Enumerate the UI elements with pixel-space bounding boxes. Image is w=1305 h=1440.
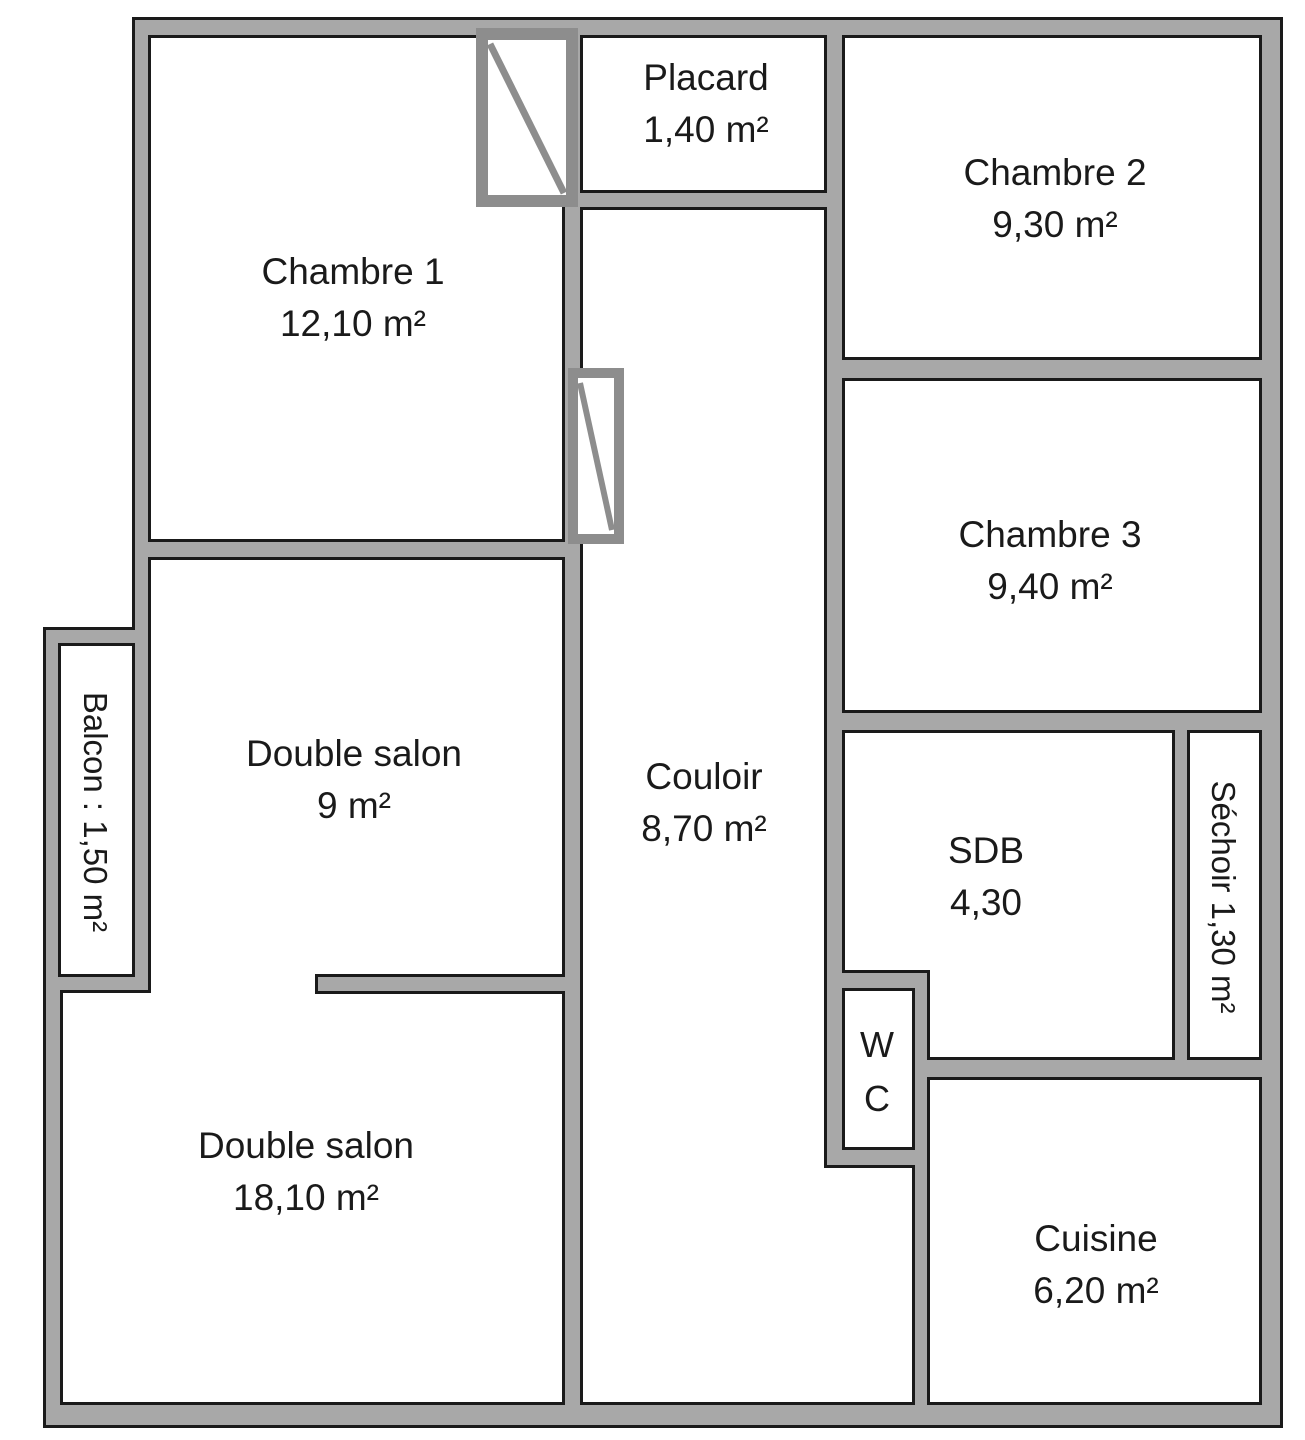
room-area: 9 m²: [246, 780, 462, 832]
room-label-sdb: SDB 4,30: [948, 825, 1024, 929]
room-name: C: [860, 1072, 894, 1126]
room-name: Balcon : 1,50 m²: [72, 692, 118, 932]
room-name: Placard: [643, 52, 768, 104]
room-area: 6,20 m²: [1033, 1265, 1158, 1317]
room-name: Couloir: [641, 751, 766, 803]
room-name: SDB: [948, 825, 1024, 877]
wall-segment: [565, 20, 580, 1425]
wall-segment: [827, 20, 842, 1165]
room-name: W: [860, 1018, 894, 1072]
wall-segment: [828, 1150, 927, 1165]
room-label-sechoir: Séchoir 1,30 m²: [1200, 781, 1246, 1014]
wall-segment: [1175, 730, 1187, 1077]
room-area: 12,10 m²: [261, 298, 444, 350]
room-name: Séchoir 1,30 m²: [1200, 781, 1246, 1014]
room-area: 8,70 m²: [641, 803, 766, 855]
closet-door-icon: [482, 34, 572, 201]
room-name: Chambre 1: [261, 246, 444, 298]
wall-segment: [135, 542, 580, 557]
closet-door-icon: [573, 373, 619, 539]
wall-segment: [915, 973, 927, 1165]
floor-plan: Chambre 1 12,10 m² Placard 1,40 m² Chamb…: [0, 0, 1305, 1440]
room-label-couloir: Couloir 8,70 m²: [641, 751, 766, 855]
room-area: 1,40 m²: [643, 104, 768, 156]
room-label-placard: Placard 1,40 m²: [643, 52, 768, 156]
wall-segment: [135, 20, 1280, 35]
wall-segment: [46, 1405, 1280, 1425]
room-area: 18,10 m²: [198, 1172, 414, 1224]
wall-segment: [46, 630, 148, 643]
room-area: 9,30 m²: [963, 199, 1146, 251]
wall-segment: [46, 977, 60, 1425]
room-area: 9,40 m²: [958, 561, 1141, 613]
wall-segment: [318, 977, 580, 991]
wall-segment: [827, 360, 1262, 378]
room-label-cuisine: Cuisine 6,20 m²: [1033, 1213, 1158, 1317]
room-label-chambre-2: Chambre 2 9,30 m²: [963, 147, 1146, 251]
room-label-double-salon-bas: Double salon 18,10 m²: [198, 1120, 414, 1224]
room-name: Double salon: [198, 1120, 414, 1172]
wall-segment: [915, 1060, 1280, 1077]
wall-segment: [135, 20, 148, 990]
room-label-chambre-1: Chambre 1 12,10 m²: [261, 246, 444, 350]
room-name: Double salon: [246, 728, 462, 780]
wall-segment: [842, 973, 927, 988]
room-name: Cuisine: [1033, 1213, 1158, 1265]
room-name: Chambre 3: [958, 509, 1141, 561]
wall-segment: [46, 630, 58, 990]
wall-segment: [565, 193, 842, 207]
room-name: Chambre 2: [963, 147, 1146, 199]
wall-segment: [827, 713, 1262, 730]
room-area: 4,30: [948, 877, 1024, 929]
wall-segment: [1262, 20, 1280, 1425]
room-label-wc: W C: [860, 1018, 894, 1126]
room-label-balcon: Balcon : 1,50 m²: [72, 692, 118, 932]
room-label-double-salon-haut: Double salon 9 m²: [246, 728, 462, 832]
room-label-chambre-3: Chambre 3 9,40 m²: [958, 509, 1141, 613]
wall-segment: [46, 977, 148, 990]
